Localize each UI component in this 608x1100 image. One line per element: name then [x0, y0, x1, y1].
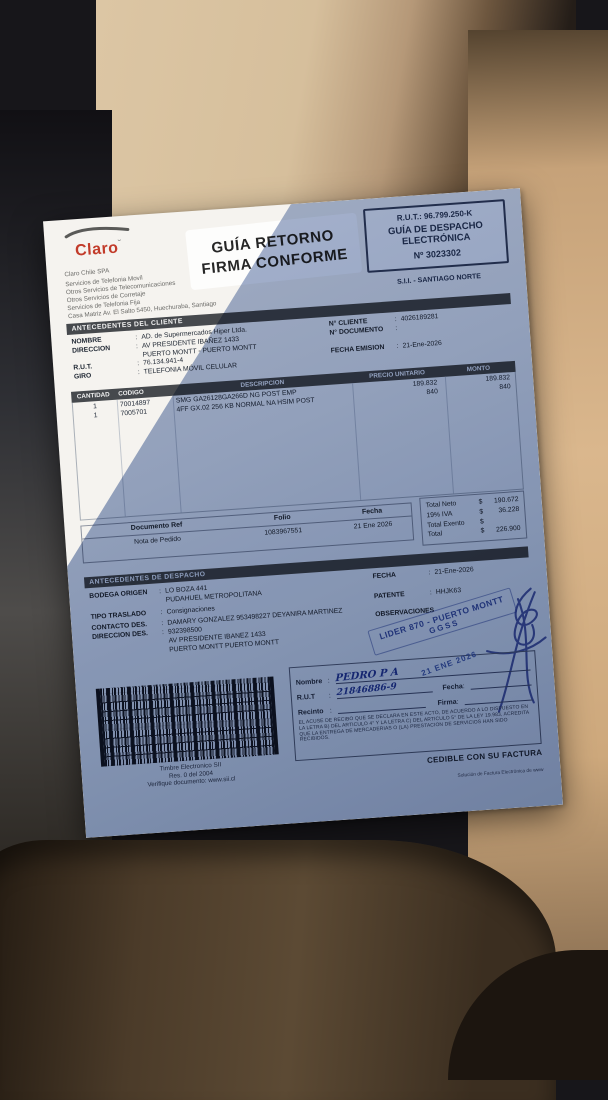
- client-info-right: N° CLIENTE:4026189281 N° DOCUMENTO: FECH…: [329, 308, 516, 356]
- dispatch-fecha-row: FECHA:21-Ene-2026: [372, 566, 474, 582]
- client-section-title: ANTECEDENTES DEL CLIENTE: [71, 318, 183, 333]
- dispatch-info-left: BODEGA ORIGEN:LO BOZA 441 PUDAHUEL METRO…: [89, 574, 363, 660]
- dispatch-patente-row: PATENTE:HHJK63: [374, 587, 462, 602]
- totals-box: Total Neto$190.672 19% IVA$36.228 Total …: [419, 491, 527, 546]
- sii-office-label: S.I.I. - SANTIAGO NORTE: [368, 271, 510, 288]
- emission-date-label: FECHA EMISION: [331, 343, 393, 356]
- receipt-box: Nombre : PEDRO P A R.U.T : 21846886-9 Fe…: [289, 650, 542, 761]
- provider-footer: Solución de Factura Electrónica de www: [333, 768, 544, 788]
- delivery-guide-document: Claro˘ Claro Chile SPA Servicios de Tele…: [43, 188, 563, 838]
- tipo-traslado-value: Consignaciones: [166, 605, 215, 617]
- return-signature-stamp: GUÍA RETORNO FIRMA CONFORME: [185, 213, 362, 291]
- receipt-recinto-label: Recinto: [298, 708, 330, 717]
- colon: :: [392, 342, 403, 351]
- patente-label: PATENTE: [374, 590, 426, 602]
- total-value: 226.900: [488, 524, 521, 536]
- receipt-firma-label: Firma: [425, 699, 456, 708]
- emission-date-value: 21-Ene-2026: [402, 340, 442, 352]
- claro-logo: Claro˘: [74, 238, 122, 261]
- patente-value: HHJK63: [436, 587, 462, 598]
- claro-logo-text: Claro: [75, 240, 119, 260]
- spacer: [156, 597, 167, 606]
- tipo-traslado-label: TIPO TRASLADO: [91, 609, 157, 622]
- dispatch-section-title: ANTECEDENTES DE DESPACHO: [89, 571, 206, 586]
- colon: :: [134, 369, 145, 378]
- item-cantidad: 1: [73, 410, 117, 422]
- dispatch-fecha-label: FECHA: [372, 570, 424, 582]
- colon: :: [424, 569, 435, 578]
- colon: :: [426, 589, 437, 598]
- colon: :: [391, 324, 402, 333]
- dispatch-fecha-value: 21-Ene-2026: [434, 566, 474, 578]
- colon: :: [156, 608, 167, 617]
- sii-electronic-stamp-barcode: [96, 676, 279, 766]
- rut-document-box: R.U.T.: 96.799.250-K GUÍA DE DESPACHO EL…: [363, 199, 509, 273]
- claro-logo-accent: ˘: [118, 238, 122, 248]
- spacer: [159, 646, 170, 655]
